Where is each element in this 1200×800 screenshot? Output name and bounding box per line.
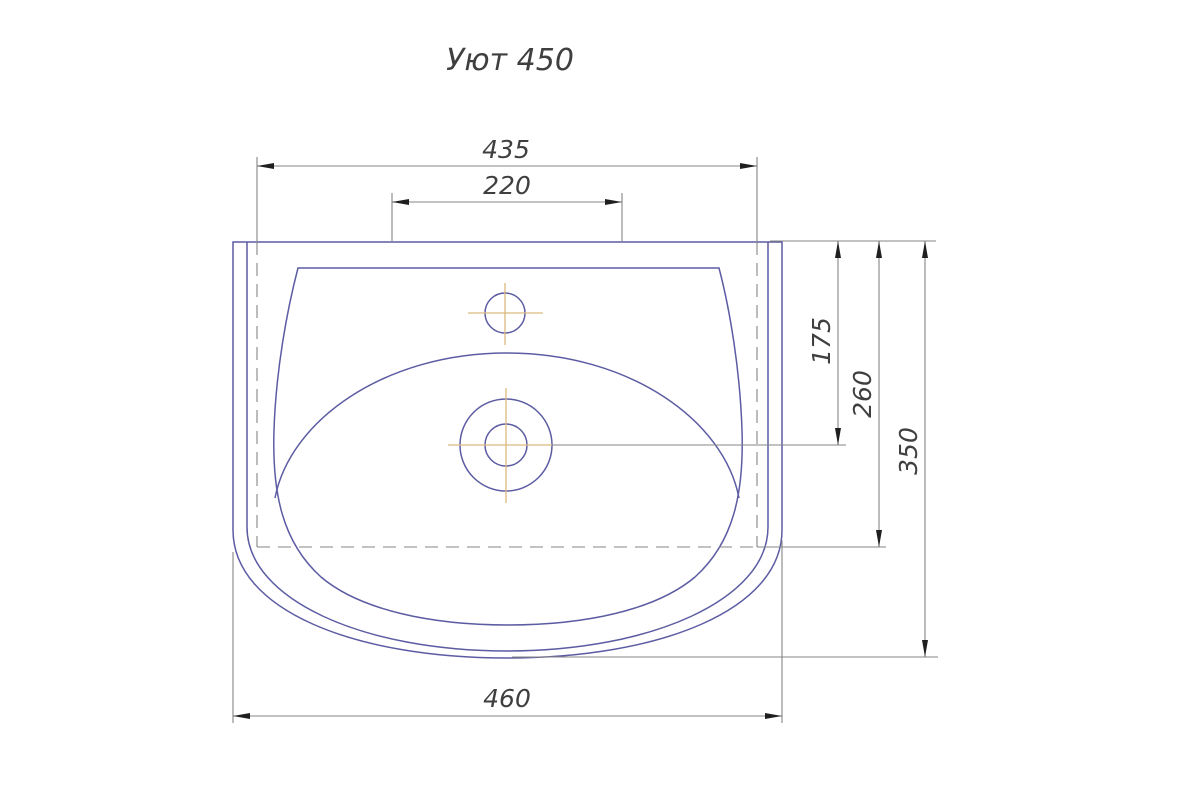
- arrow-460-right: [765, 713, 782, 719]
- basin-deck-outline: [274, 268, 742, 625]
- drawing-title: Уют 450: [446, 43, 574, 78]
- arrow-460-left: [233, 713, 250, 719]
- arrow-435-right: [740, 163, 757, 169]
- basin-rim-line: [247, 242, 768, 651]
- arrow-260-bottom: [876, 530, 882, 547]
- arrow-350-top: [922, 241, 928, 258]
- dim-label-overall-depth: 350: [894, 427, 923, 475]
- arrow-175-bottom: [835, 428, 841, 445]
- basin-outer-outline: [233, 242, 782, 658]
- arrow-260-top: [876, 241, 882, 258]
- dim-label-faucet-to-drain-depth: 175: [807, 317, 836, 365]
- arrow-175-top: [835, 241, 841, 258]
- dim-label-front-edge-depth: 260: [848, 370, 877, 418]
- dim-label-bottom-width: 460: [483, 684, 531, 713]
- washbasin-technical-drawing: Уют 450 435 220 175 260 350 460: [0, 0, 1200, 800]
- drawing-canvas: Уют 450 435 220 175 260 350 460: [0, 0, 1200, 800]
- arrow-350-bottom: [922, 640, 928, 657]
- dim-label-faucet-holes-span: 220: [483, 171, 531, 200]
- arrow-220-left: [392, 199, 409, 205]
- arrow-220-right: [605, 199, 622, 205]
- dim-label-top-width: 435: [482, 135, 530, 164]
- bowl-shelf-curve: [275, 353, 739, 498]
- arrow-435-left: [257, 163, 274, 169]
